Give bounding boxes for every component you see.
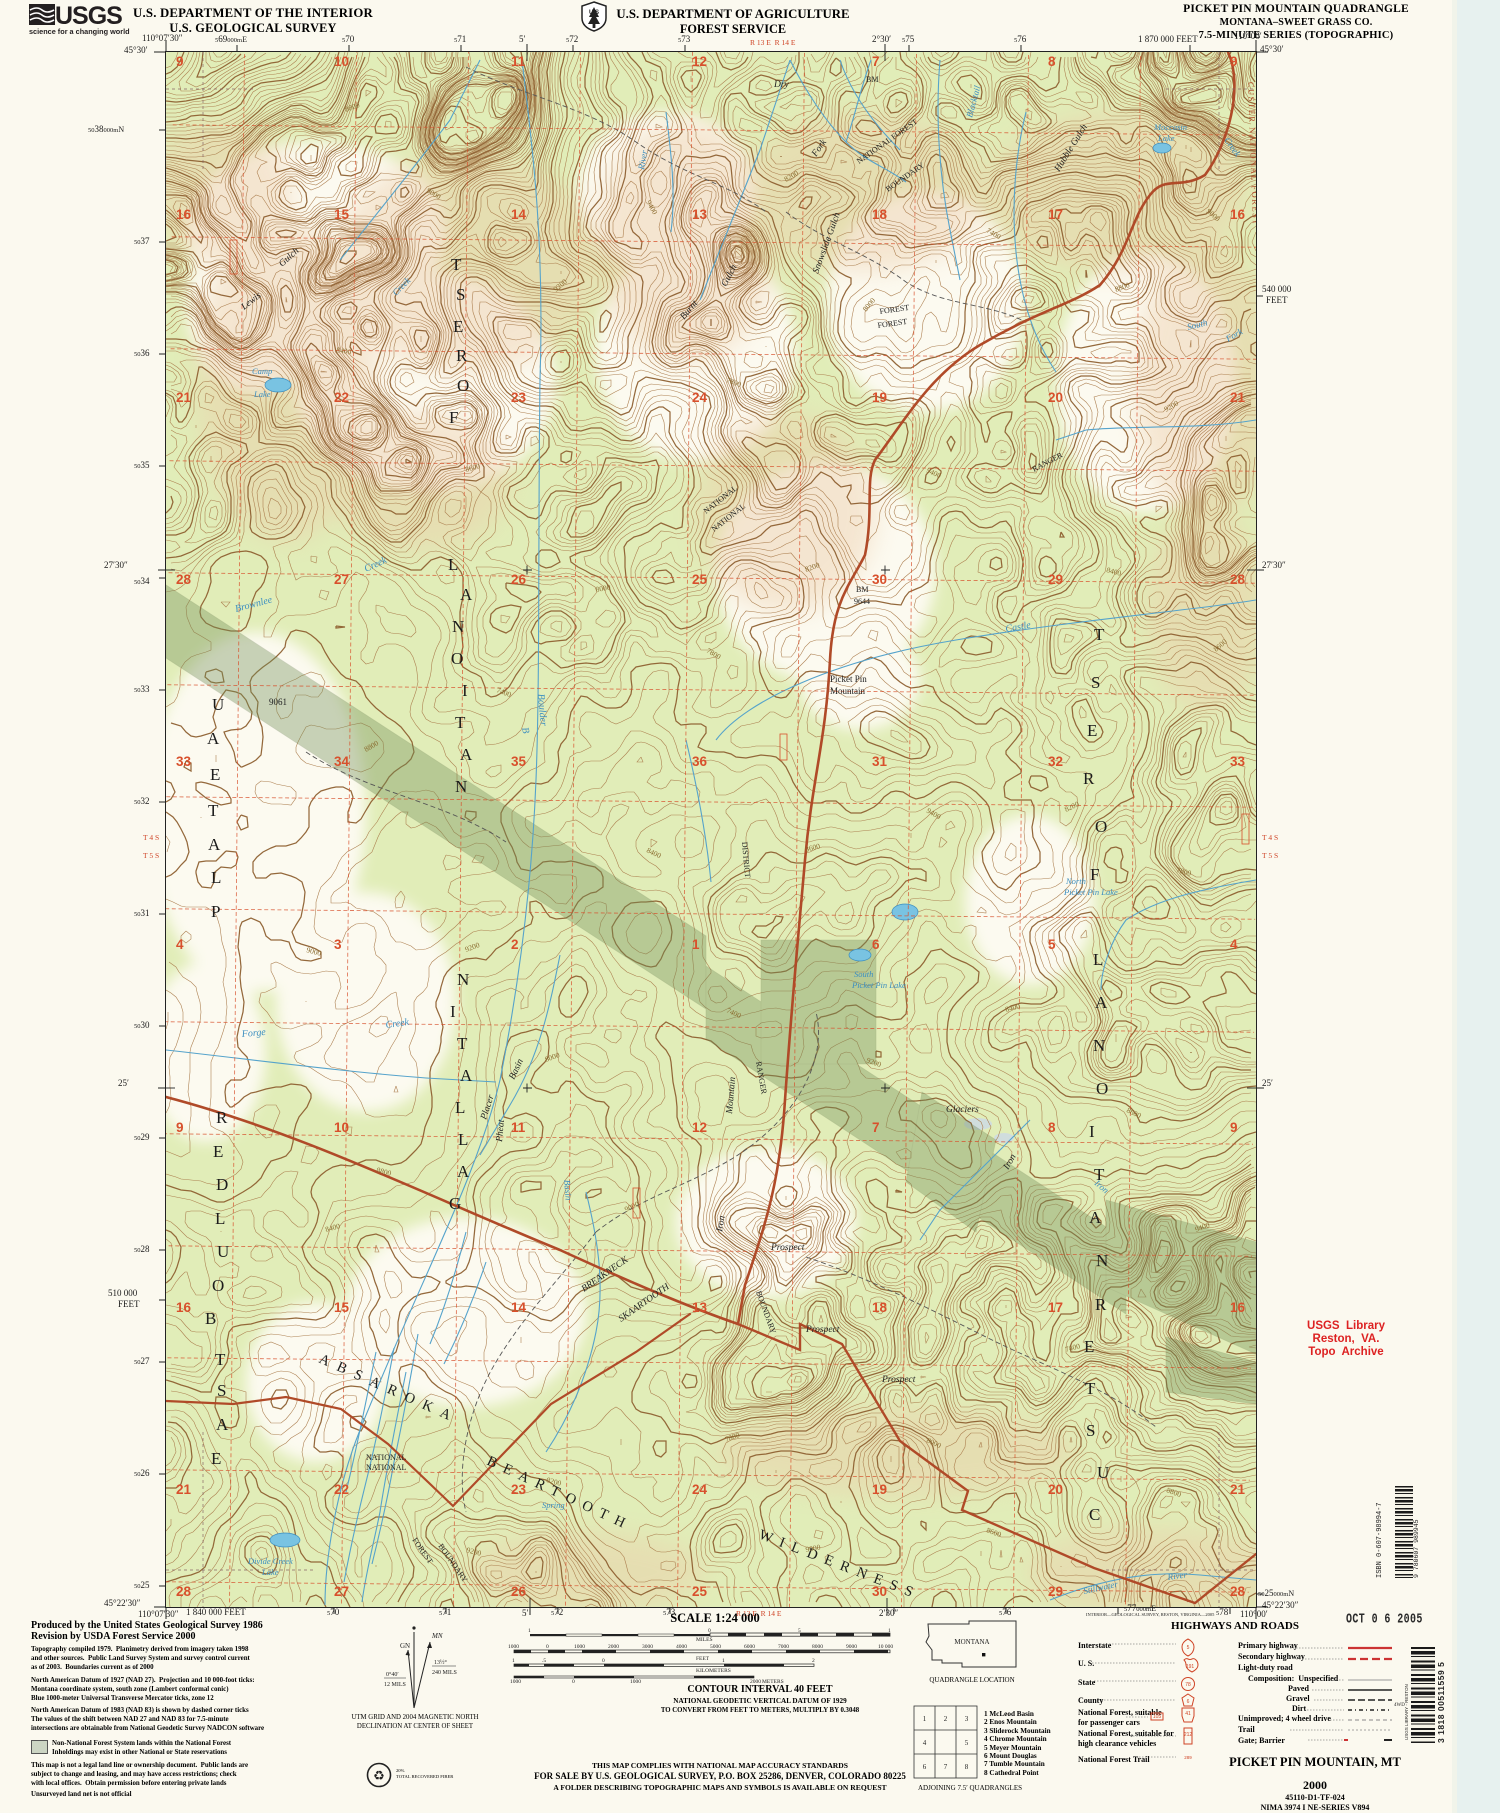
svg-text:Pheat: Pheat [495, 1119, 507, 1143]
svg-text:GN: GN [400, 1642, 410, 1650]
svg-text:Glaciers: Glaciers [946, 1105, 979, 1115]
svg-text:Moccasin: Moccasin [1153, 122, 1187, 132]
svg-text:Lake: Lake [261, 1567, 279, 1577]
svg-text:E: E [1084, 1337, 1094, 1356]
svg-text:240 MILS: 240 MILS [432, 1670, 457, 1676]
svg-text:T: T [455, 713, 466, 732]
svg-text:A: A [216, 1415, 229, 1434]
svg-text:♻: ♻ [373, 1768, 385, 1783]
svg-text:U S: U S [589, 10, 599, 16]
svg-text:S: S [1091, 673, 1100, 692]
svg-text:21: 21 [1230, 390, 1246, 405]
svg-text:8: 8 [1048, 1120, 1056, 1135]
svg-text:41: 41 [1185, 1711, 1191, 1717]
svg-text:1: 1 [888, 1628, 891, 1634]
svg-text:Lake: Lake [253, 389, 271, 399]
svg-text:13: 13 [692, 207, 708, 222]
svg-text:7000: 7000 [778, 1644, 789, 1650]
svg-text:30: 30 [872, 572, 887, 587]
svg-text:3: 3 [965, 1715, 969, 1723]
svg-text:9: 9 [1230, 54, 1238, 69]
svg-text:18: 18 [872, 1300, 888, 1315]
svg-text:32: 32 [1048, 754, 1063, 769]
svg-text:8000: 8000 [812, 1644, 823, 1650]
svg-text:17: 17 [1048, 1300, 1063, 1315]
svg-text:28: 28 [1230, 1584, 1246, 1599]
svg-text:T: T [1085, 1379, 1096, 1398]
svg-text:O: O [457, 376, 469, 395]
svg-text:BM: BM [856, 585, 868, 594]
svg-text:P: P [211, 902, 220, 921]
svg-text:27: 27 [334, 1584, 349, 1599]
svg-text:33: 33 [176, 754, 192, 769]
svg-text:33: 33 [1230, 754, 1246, 769]
svg-text:34: 34 [334, 754, 350, 769]
svg-text:I: I [450, 1002, 456, 1021]
svg-text:A: A [460, 585, 473, 604]
svg-text:A: A [457, 1162, 470, 1181]
svg-text:T: T [451, 255, 462, 274]
svg-text:4: 4 [1230, 937, 1238, 952]
svg-text:U: U [212, 695, 224, 714]
svg-text:6000: 6000 [744, 1644, 755, 1650]
svg-text:S: S [456, 285, 465, 304]
svg-text:9000: 9000 [846, 1644, 857, 1650]
svg-text:0: 0 [572, 1679, 575, 1685]
svg-text:13: 13 [692, 1300, 708, 1315]
svg-text:10: 10 [334, 1120, 349, 1135]
svg-text:16: 16 [1230, 1300, 1246, 1315]
svg-text:26: 26 [511, 1584, 527, 1599]
svg-text:O: O [1095, 817, 1107, 836]
svg-text:8: 8 [965, 1763, 969, 1771]
svg-text:Basin: Basin [562, 1179, 574, 1201]
svg-text:24: 24 [692, 390, 708, 405]
svg-text:191: 191 [1186, 1664, 1195, 1670]
svg-text:L: L [211, 868, 221, 887]
svg-text:21: 21 [176, 390, 192, 405]
svg-text:28: 28 [176, 572, 192, 587]
svg-text:A: A [208, 835, 221, 854]
svg-text:22: 22 [334, 1482, 349, 1497]
svg-text:L: L [458, 1130, 468, 1149]
svg-text:0°40′: 0°40′ [386, 1671, 399, 1678]
svg-text:14: 14 [511, 207, 527, 222]
svg-text:E: E [1087, 721, 1097, 740]
svg-text:1: 1 [692, 937, 700, 952]
svg-text:1000: 1000 [510, 1679, 521, 1685]
svg-text:T: T [215, 1350, 226, 1369]
svg-text:Picket Pin Lake: Picket Pin Lake [1063, 887, 1118, 897]
svg-text:6: 6 [1187, 1699, 1190, 1705]
svg-text:A: A [1089, 1208, 1102, 1227]
svg-text:G: G [449, 1194, 461, 1213]
svg-text:C: C [1089, 1505, 1100, 1524]
svg-text:3000: 3000 [642, 1644, 653, 1650]
svg-text:5: 5 [1187, 1645, 1190, 1651]
svg-text:7: 7 [944, 1763, 948, 1771]
svg-text:105: 105 [1153, 1714, 1162, 1720]
svg-text:F: F [1090, 865, 1099, 884]
svg-text:N: N [1096, 1251, 1108, 1270]
svg-text:1000: 1000 [508, 1644, 519, 1650]
svg-text:.5: .5 [542, 1658, 546, 1664]
svg-text:A: A [1095, 993, 1108, 1012]
svg-text:23: 23 [511, 390, 527, 405]
svg-text:Prospect: Prospect [770, 1243, 805, 1253]
svg-text:21: 21 [1230, 1482, 1246, 1497]
svg-text:A: A [460, 745, 473, 764]
svg-text:N: N [1093, 1036, 1105, 1055]
svg-text:8: 8 [1048, 54, 1056, 69]
svg-text:9: 9 [1230, 1120, 1238, 1135]
svg-text:18: 18 [872, 207, 888, 222]
svg-text:12: 12 [692, 1120, 707, 1135]
svg-text:3: 3 [334, 937, 342, 952]
svg-text:4000: 4000 [676, 1644, 687, 1650]
svg-text:E: E [211, 1449, 221, 1468]
svg-text:9: 9 [176, 1120, 184, 1135]
svg-text:0: 0 [546, 1644, 549, 1650]
svg-text:26: 26 [511, 572, 527, 587]
svg-text:R: R [216, 1108, 228, 1127]
svg-text:20: 20 [1048, 390, 1063, 405]
svg-text:NATIONAL: NATIONAL [366, 1463, 407, 1472]
svg-text:Spring: Spring [542, 1500, 565, 1510]
svg-text:35: 35 [511, 754, 527, 769]
svg-text:19: 19 [872, 1482, 887, 1497]
svg-text:Forge: Forge [240, 1027, 266, 1040]
svg-text:FEET: FEET [696, 1656, 710, 1662]
svg-text:Mountain: Mountain [830, 686, 865, 696]
svg-text:9644: 9644 [854, 597, 870, 606]
svg-text:7: 7 [872, 1120, 880, 1135]
svg-text:1: 1 [528, 1628, 531, 1634]
svg-text:E: E [213, 1142, 223, 1161]
svg-text:L: L [455, 1098, 465, 1117]
svg-text:Camp: Camp [252, 366, 272, 376]
svg-text:I: I [462, 681, 468, 700]
svg-text:5: 5 [1048, 937, 1056, 952]
svg-text:4: 4 [923, 1739, 927, 1747]
svg-text:0: 0 [602, 1658, 605, 1664]
svg-text:5: 5 [798, 1628, 801, 1634]
svg-text:Prospect: Prospect [805, 1325, 840, 1335]
svg-text:MN: MN [431, 1632, 443, 1640]
svg-text:4WD: 4WD [1394, 1703, 1405, 1708]
svg-text:13½°: 13½° [434, 1659, 448, 1666]
svg-text:Picket Pin: Picket Pin [830, 674, 867, 684]
svg-text:21: 21 [176, 1482, 192, 1497]
svg-text:1: 1 [923, 1715, 927, 1723]
svg-text:L: L [215, 1209, 225, 1228]
svg-text:S: S [1086, 1421, 1095, 1440]
svg-text:10: 10 [334, 54, 349, 69]
svg-text:28: 28 [1230, 572, 1246, 587]
svg-text:28: 28 [176, 1584, 192, 1599]
svg-text:9061: 9061 [269, 697, 287, 707]
svg-text:289: 289 [1184, 1755, 1192, 1760]
svg-text:N: N [457, 970, 469, 989]
svg-text:22: 22 [334, 390, 349, 405]
svg-text:27: 27 [334, 572, 349, 587]
svg-text:25: 25 [692, 572, 708, 587]
svg-text:78: 78 [1185, 1682, 1191, 1688]
svg-text:T: T [457, 1034, 468, 1053]
svg-text:17: 17 [1048, 207, 1063, 222]
svg-text:L: L [1093, 950, 1103, 969]
svg-text:19: 19 [872, 390, 887, 405]
svg-text:N: N [455, 777, 467, 796]
svg-text:U: U [217, 1242, 229, 1261]
svg-text:B: B [205, 1309, 216, 1328]
svg-text:N: N [452, 617, 464, 636]
svg-text:S: S [217, 1381, 226, 1400]
svg-text:U: U [1097, 1463, 1109, 1482]
svg-text:BM: BM [866, 75, 878, 84]
svg-text:O: O [212, 1276, 224, 1295]
svg-text:10 000: 10 000 [878, 1644, 893, 1650]
svg-text:6: 6 [872, 937, 880, 952]
svg-text:T: T [1094, 625, 1105, 644]
svg-text:1: 1 [722, 1658, 725, 1664]
svg-text:5: 5 [965, 1739, 969, 1747]
svg-text:Divide Creek: Divide Creek [247, 1556, 293, 1566]
svg-text:R: R [456, 346, 468, 365]
svg-text:Dry: Dry [773, 80, 790, 90]
svg-text:5000: 5000 [710, 1644, 721, 1650]
svg-text:MILES: MILES [696, 1637, 713, 1643]
svg-text:South: South [854, 969, 873, 979]
svg-text:E: E [453, 317, 463, 336]
svg-text:1: 1 [512, 1658, 515, 1664]
svg-text:29: 29 [1048, 1584, 1063, 1599]
svg-text:15: 15 [334, 1300, 350, 1315]
svg-text:1000: 1000 [574, 1644, 585, 1650]
svg-text:6: 6 [923, 1763, 927, 1771]
svg-text:D: D [216, 1175, 228, 1194]
svg-text:12 MILS: 12 MILS [384, 1682, 406, 1688]
svg-text:15: 15 [334, 207, 350, 222]
svg-text:L: L [448, 555, 458, 574]
svg-text:29: 29 [1048, 572, 1063, 587]
svg-text:11: 11 [511, 1120, 526, 1135]
svg-text:R: R [1095, 1295, 1107, 1314]
svg-text:24: 24 [692, 1482, 708, 1497]
svg-text:4: 4 [176, 937, 184, 952]
svg-text:R: R [1083, 769, 1095, 788]
svg-text:Picket Pin Lake: Picket Pin Lake [851, 980, 906, 990]
svg-text:14: 14 [511, 1300, 527, 1315]
svg-text:9: 9 [176, 54, 184, 69]
svg-text:36: 36 [692, 754, 708, 769]
svg-text:O: O [451, 649, 463, 668]
svg-text:F: F [449, 408, 458, 427]
svg-text:20: 20 [1048, 1482, 1063, 1497]
svg-text:25: 25 [692, 1584, 708, 1599]
svg-text:11: 11 [511, 54, 526, 69]
svg-text:2: 2 [944, 1715, 948, 1723]
svg-text:2000: 2000 [608, 1644, 619, 1650]
svg-text:T: T [208, 801, 219, 820]
svg-text:2: 2 [812, 1658, 815, 1664]
svg-text:31: 31 [872, 754, 888, 769]
svg-text:2: 2 [511, 937, 519, 952]
svg-text:KILOMETERS: KILOMETERS [696, 1668, 731, 1674]
svg-text:A: A [207, 729, 220, 748]
svg-text:I: I [1089, 1122, 1095, 1141]
svg-text:16: 16 [176, 1300, 192, 1315]
svg-text:Lake: Lake [1157, 133, 1175, 143]
svg-text:0: 0 [708, 1628, 711, 1634]
svg-text:North: North [1065, 876, 1086, 886]
svg-text:MONTANA: MONTANA [954, 1638, 989, 1646]
svg-text:16: 16 [1230, 207, 1246, 222]
svg-text:A: A [460, 1066, 473, 1085]
svg-text:16: 16 [176, 207, 192, 222]
svg-text:Prospect: Prospect [881, 1375, 916, 1385]
svg-text:12: 12 [692, 54, 707, 69]
svg-text:O: O [1096, 1079, 1108, 1098]
svg-text:E: E [210, 765, 220, 784]
svg-text:NATIONAL: NATIONAL [366, 1453, 407, 1462]
svg-text:7: 7 [872, 54, 880, 69]
svg-text:212: 212 [1184, 1732, 1193, 1738]
